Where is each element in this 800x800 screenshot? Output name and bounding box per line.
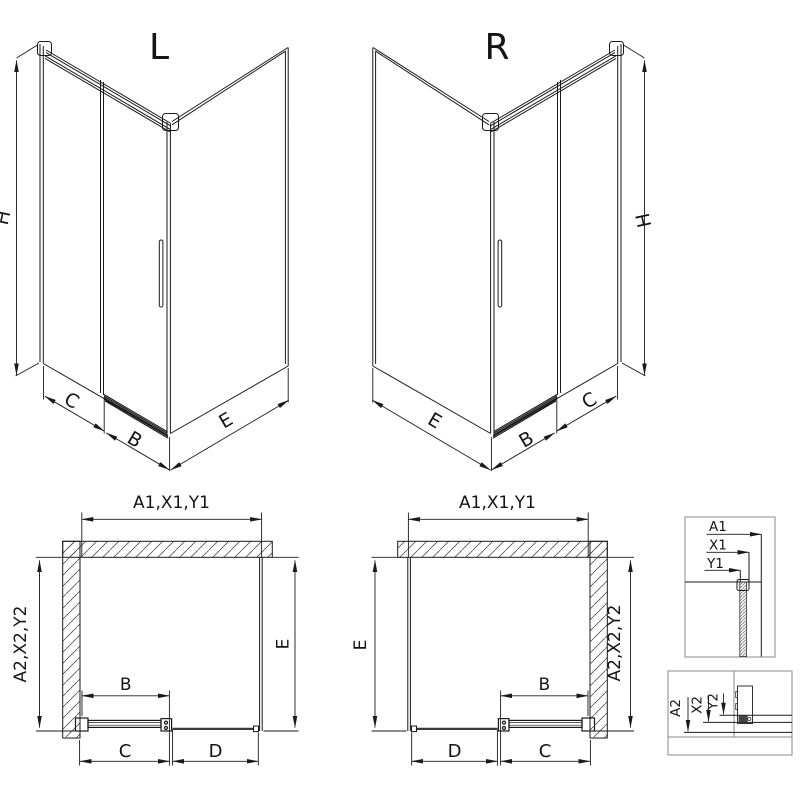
plan-left-dim-d-label: D (209, 741, 223, 762)
detail-top-glass-section (740, 582, 747, 657)
plan-right-dim-right-label: A2,X2,Y2 (605, 605, 625, 682)
iso-left-dim-height-label: H (0, 208, 15, 227)
plan-left-side-wall (63, 541, 80, 738)
iso-view-right: R H E B C (372, 27, 656, 471)
iso-view-left: L H C B E (0, 27, 289, 471)
plan-view-left: A1,X1,Y1 A2,X2,Y2 E B C D (11, 493, 299, 766)
detail-top-label-x1: X1 (709, 538, 727, 554)
plan-left-dim-c-label: C (119, 741, 132, 762)
detail-top-label-y1: Y1 (706, 556, 724, 572)
plan-right-top-wall (398, 541, 608, 557)
detail-top-label-a1: A1 (709, 519, 727, 535)
detail-box-bottom: A2 X2 Y2 (668, 671, 792, 755)
detail-bottom-label-a2: A2 (668, 699, 684, 717)
plan-right-dim-top-label: A1,X1,Y1 (459, 493, 536, 513)
plan-left-dim-right-label: E (274, 639, 294, 650)
iso-right-dim-height-label: H (632, 211, 656, 230)
plan-left-dim-b-label: B (120, 675, 132, 695)
iso-left-title: L (149, 27, 169, 68)
drawing-sheet: L H C B E R H E B C A1,X1,Y1 A2,X2,Y2 E … (0, 0, 800, 800)
shower-enclosure-technical-drawing: L H C B E R H E B C A1,X1,Y1 A2,X2,Y2 E … (0, 0, 800, 800)
plan-right-dim-b-label: B (538, 675, 550, 695)
iso-left-dim-c-label: C (60, 388, 83, 414)
iso-right-title: R (484, 27, 509, 68)
iso-right-dim-c-label: C (578, 388, 601, 414)
detail-bottom-label-y2: Y2 (706, 693, 722, 711)
iso-right-dim-e-label: E (424, 408, 446, 433)
plan-right-dim-c-label: C (539, 741, 552, 762)
plan-right-dim-left-label: E (351, 640, 371, 651)
detail-bottom-rail-section (739, 716, 748, 723)
detail-bottom-label-x2: X2 (690, 696, 706, 714)
detail-box-top: A1 X1 Y1 (685, 517, 775, 657)
plan-left-dim-left-label: A2,X2,Y2 (11, 606, 31, 683)
iso-left-dim-b-label: B (123, 427, 145, 453)
plan-right-dim-d-label: D (448, 741, 462, 762)
plan-view-right: A1,X1,Y1 E A2,X2,Y2 B D C (351, 493, 634, 766)
iso-left-dim-e-label: E (215, 408, 237, 433)
plan-left-top-wall (63, 541, 273, 557)
plan-left-dim-top-label: A1,X1,Y1 (133, 493, 210, 513)
iso-right-dim-b-label: B (515, 427, 537, 453)
